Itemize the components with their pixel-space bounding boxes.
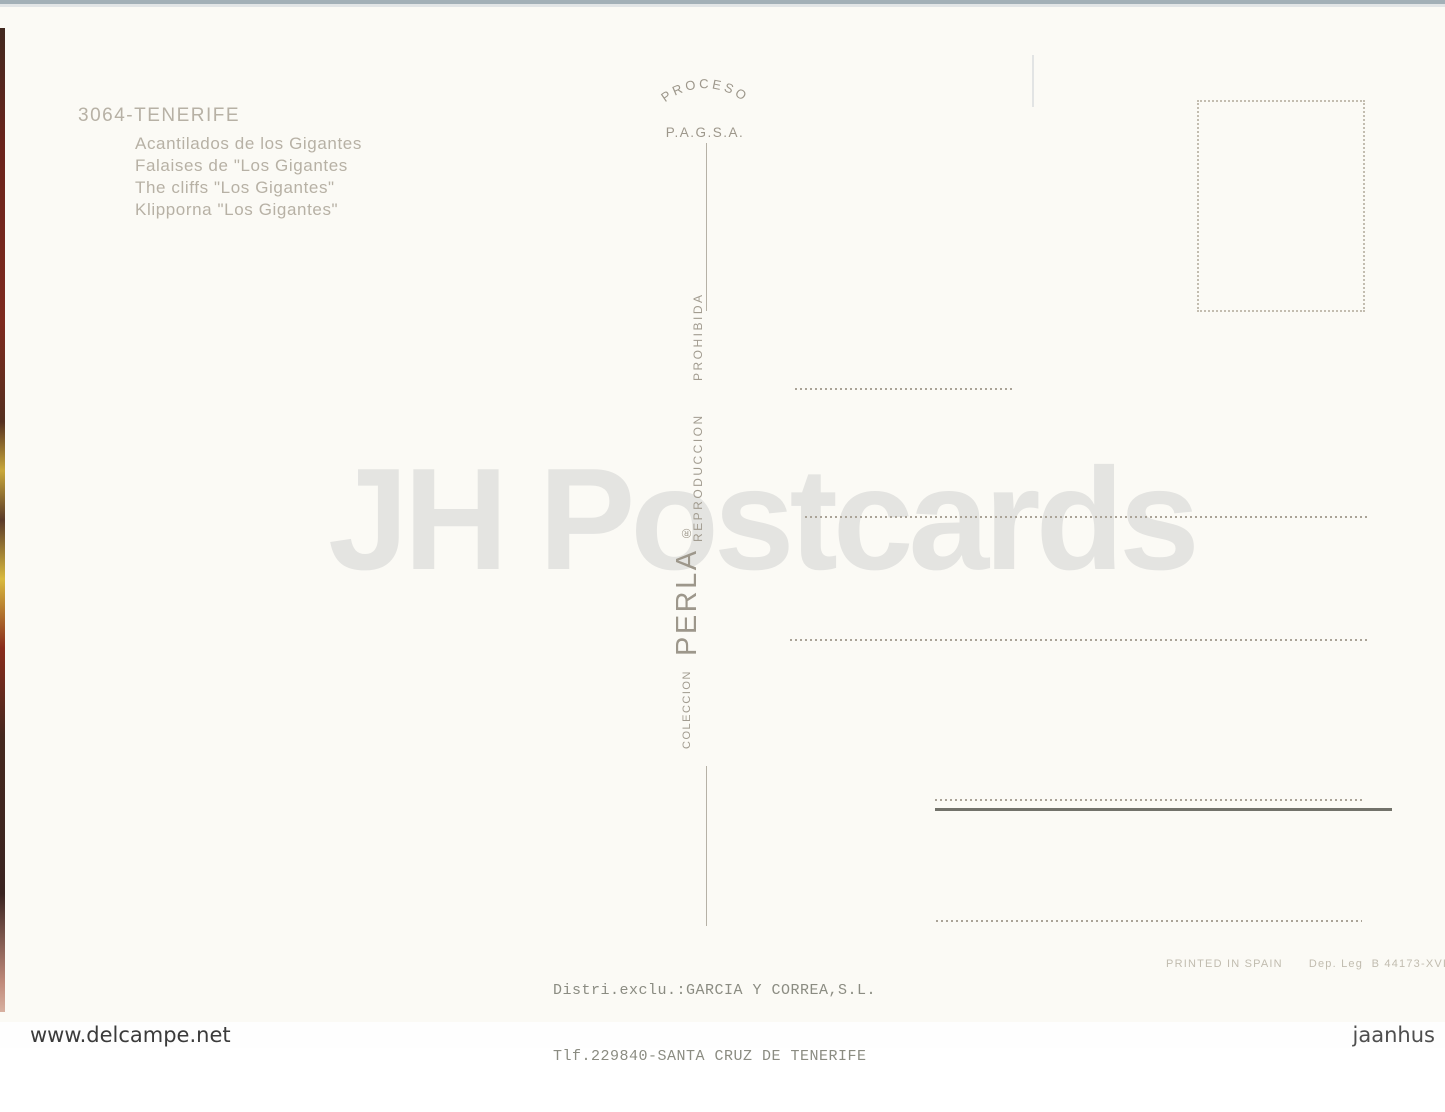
- distributor-phone-line: Tlf.229840-SANTA CRUZ DE TENERIFE: [553, 1046, 876, 1068]
- prohibited-word: PROHIBIDA: [691, 293, 705, 382]
- svg-text:PROCESO: PROCESO: [658, 76, 751, 105]
- subtitle-swedish: Klipporna "Los Gigantes": [135, 199, 362, 221]
- card-number-title: 3064-TENERIFE: [78, 105, 362, 127]
- stamp-box: [1197, 100, 1365, 312]
- process-mark: PROCESO P.A.G.S.A.: [630, 63, 780, 148]
- adjacent-card-edge: [0, 28, 5, 1012]
- subtitle-spanish: Acantilados de los Gigantes: [135, 133, 362, 155]
- address-line-5: [936, 920, 1362, 922]
- reproduction-notice: REPRODUCCION PROHIBIDA: [691, 328, 713, 542]
- deposit-legal-label: Dep. Leg B 44173-XVI: [1309, 958, 1445, 970]
- scanner-username: jaanhus: [1353, 1023, 1435, 1047]
- address-line-1: [795, 388, 1015, 390]
- card-subtitles: Acantilados de los Gigantes Falaises de …: [135, 133, 362, 221]
- brand-name: PERLA: [671, 548, 703, 656]
- address-line-solid: [935, 808, 1392, 811]
- subtitle-english: The cliffs "Los Gigantes": [135, 177, 362, 199]
- address-line-3: [790, 639, 1367, 641]
- delcampe-logo: www.delcampe.net: [30, 1023, 231, 1047]
- registered-trademark-icon: ®: [679, 525, 694, 542]
- collection-brand-block: COLECCION PERLA ®: [671, 549, 708, 749]
- collection-label: COLECCION: [681, 670, 693, 749]
- address-line-2: [805, 516, 1367, 518]
- reproduction-word: REPRODUCCION: [691, 413, 705, 542]
- address-line-4: [935, 799, 1365, 801]
- process-sub-text: P.A.G.S.A.: [666, 125, 745, 140]
- distributor-line: Distri.exclu.:GARCIA Y CORREA,S.L.: [553, 980, 876, 1002]
- subtitle-french: Falaises de "Los Gigantes: [135, 155, 362, 177]
- scan-crease: [1032, 55, 1034, 107]
- imprint-block: PRINTED IN SPAINDep. Leg B 44173-XVI: [1149, 946, 1445, 982]
- scan-top-edge: [0, 0, 1445, 7]
- printed-in-spain-label: PRINTED IN SPAIN: [1166, 958, 1283, 970]
- process-arc-text: PROCESO: [658, 76, 751, 105]
- scan-footer: www.delcampe.net jaanhus: [0, 1022, 1445, 1048]
- postcard-back-scan: JH Postcards 3064-TENERIFE Acantilados d…: [0, 0, 1445, 1048]
- divider-line-upper: [706, 143, 707, 311]
- site-watermark: JH Postcards: [328, 436, 1195, 603]
- divider-line-lower: [706, 766, 707, 926]
- card-title-block: 3064-TENERIFE Acantilados de los Gigante…: [78, 105, 362, 221]
